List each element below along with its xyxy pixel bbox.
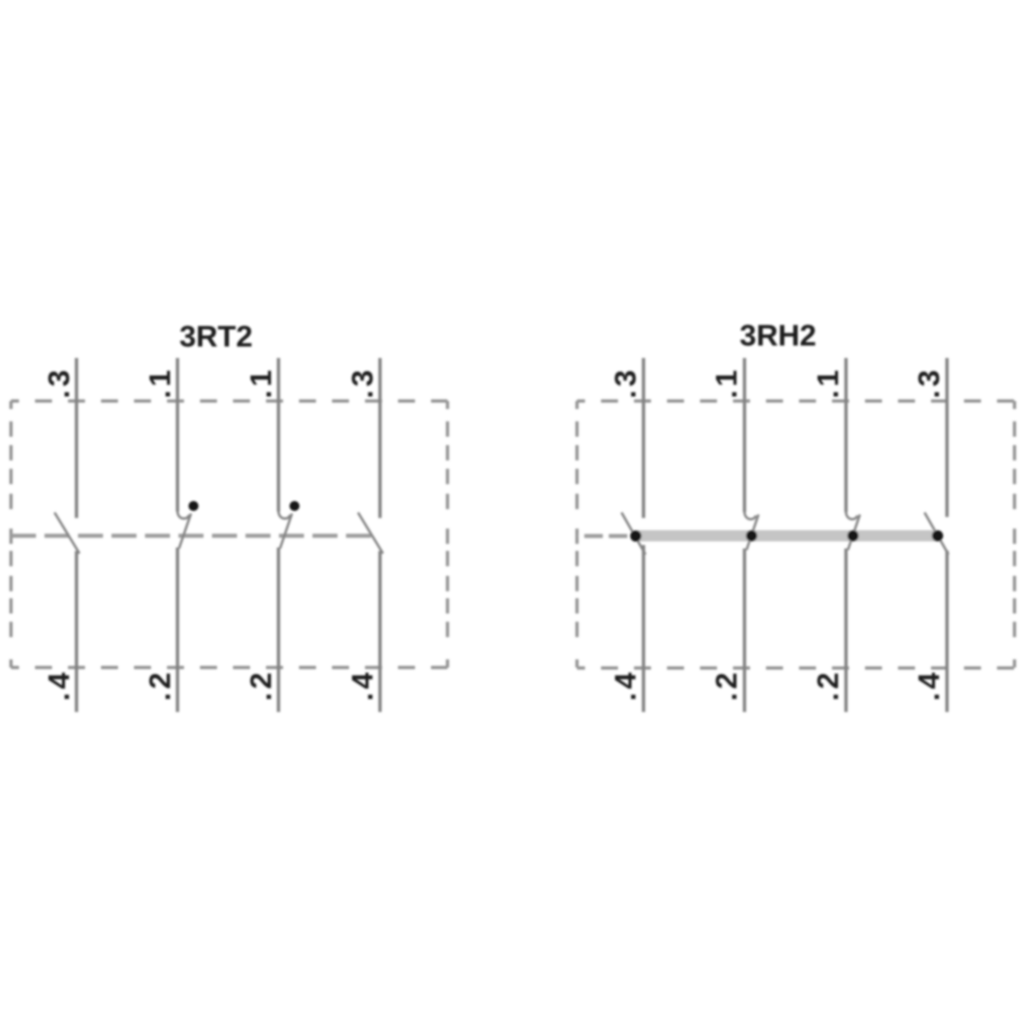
svg-text:.1: .1	[711, 366, 744, 398]
svg-text:.4: .4	[610, 669, 643, 701]
svg-text:.4: .4	[913, 669, 946, 701]
svg-text:.1: .1	[144, 366, 177, 398]
svg-text:.4: .4	[347, 669, 380, 701]
svg-text:.2: .2	[144, 669, 177, 701]
svg-text:.3: .3	[43, 366, 76, 398]
svg-text:.3: .3	[347, 366, 380, 398]
svg-text:.4: .4	[43, 669, 76, 701]
svg-text:.3: .3	[913, 366, 946, 398]
svg-text:.2: .2	[812, 669, 845, 701]
svg-text:.2: .2	[711, 669, 744, 701]
svg-text:3RT2: 3RT2	[179, 321, 252, 354]
svg-text:3RH2: 3RH2	[740, 320, 817, 353]
svg-text:.3: .3	[610, 366, 643, 398]
svg-text:.1: .1	[812, 366, 845, 398]
svg-text:.1: .1	[245, 366, 278, 398]
svg-text:.2: .2	[245, 669, 278, 701]
